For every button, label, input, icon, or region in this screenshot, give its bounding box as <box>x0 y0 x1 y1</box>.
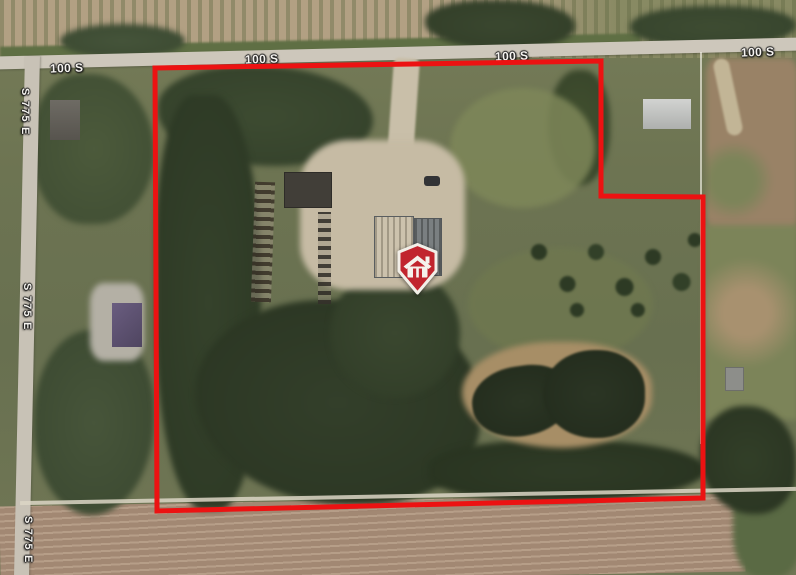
equipment-row-right <box>318 212 331 304</box>
shed-right-field <box>725 367 744 391</box>
road-label-100s-3: 100 S <box>495 48 529 63</box>
house-purple-roof <box>112 303 142 347</box>
equipment-row-left <box>251 182 275 303</box>
pond-right-lobe <box>543 350 645 438</box>
road-label-100s-2: 100 S <box>245 51 279 66</box>
road-label-100s-4: 100 S <box>741 44 775 59</box>
road-label-s775e-1: S 775 E <box>19 88 31 136</box>
road-label-s775e-2: S 775 E <box>21 283 33 331</box>
road-label-100s-1: 100 S <box>50 60 84 75</box>
vehicle <box>424 176 440 186</box>
field-right-mid <box>704 225 796 420</box>
evergreen-row-cluster <box>520 222 710 322</box>
utility-lane-right <box>700 52 702 444</box>
satellite-map[interactable]: 100 S 100 S 100 S 100 S S 775 E S 775 E … <box>0 0 796 575</box>
shed-dark-cluster <box>284 172 332 208</box>
property-marker-pin[interactable] <box>397 243 438 295</box>
house-icon <box>397 243 438 295</box>
road-label-s775e-3: S 775 E <box>22 516 34 564</box>
grass-light-patch-upper <box>450 88 595 208</box>
house-top-left <box>50 100 80 140</box>
house-top-right <box>643 99 691 129</box>
